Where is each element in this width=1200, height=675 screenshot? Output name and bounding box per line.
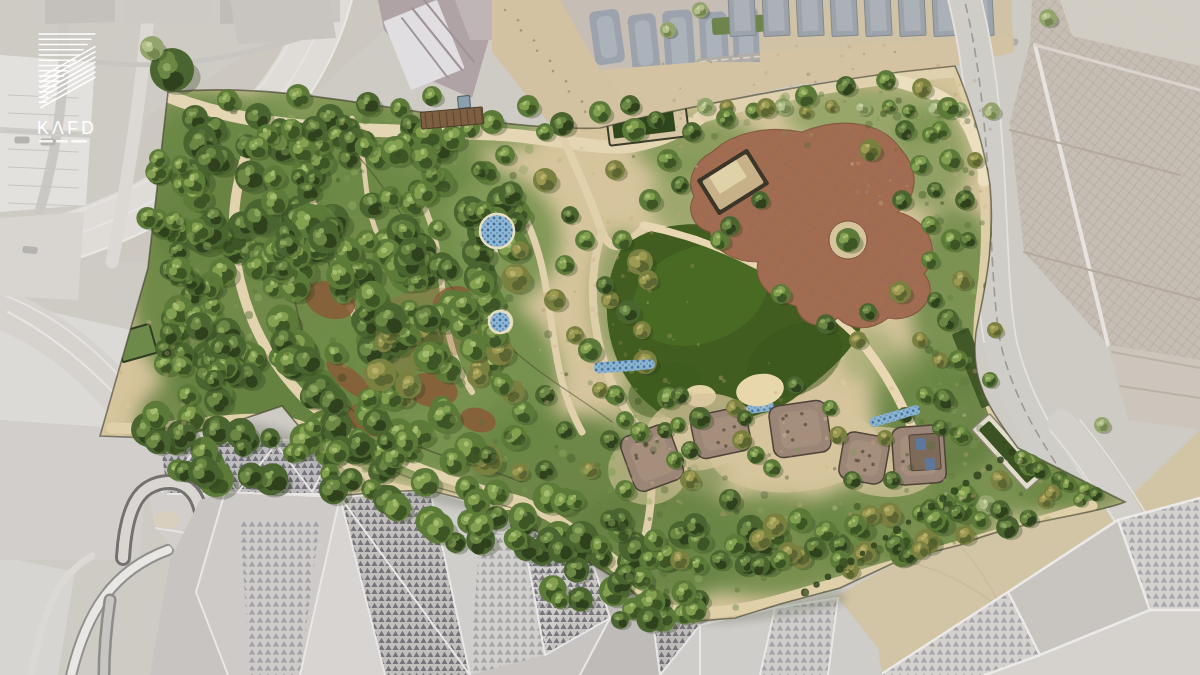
svg-text:KΛFD: KΛFD	[37, 118, 97, 138]
